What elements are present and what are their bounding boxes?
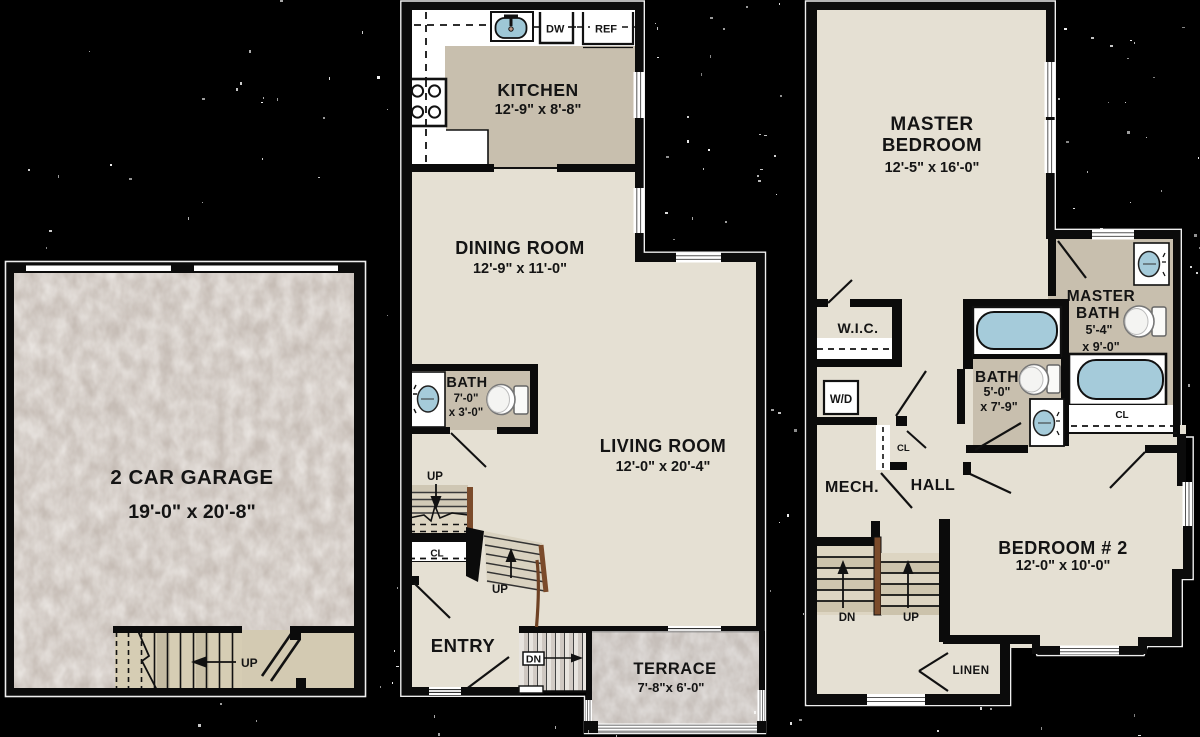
svg-text:BATH: BATH [975,369,1019,386]
svg-text:BATH: BATH [446,375,487,391]
svg-text:7'-8"x 6'-0": 7'-8"x 6'-0" [638,680,705,695]
svg-text:12'-9" x 8'-8": 12'-9" x 8'-8" [495,102,582,118]
svg-text:12'-0" x 10'-0": 12'-0" x 10'-0" [1016,558,1111,574]
svg-text:UP: UP [241,656,258,670]
svg-text:12'-5" x 16'-0": 12'-5" x 16'-0" [885,160,980,176]
svg-text:DINING ROOM: DINING ROOM [455,238,585,258]
svg-text:REF: REF [595,24,617,36]
svg-text:x 7'-9": x 7'-9" [980,400,1017,414]
svg-text:x 3'-0": x 3'-0" [449,407,483,419]
svg-text:UP: UP [492,584,508,596]
svg-text:DN: DN [526,654,541,666]
svg-text:DW: DW [546,24,565,36]
svg-text:LINEN: LINEN [953,665,990,677]
svg-text:CL: CL [1115,410,1128,421]
svg-text:W/D: W/D [830,394,852,406]
svg-text:5'-4": 5'-4" [1086,323,1113,337]
svg-text:MASTER: MASTER [890,114,973,135]
svg-text:UP: UP [427,471,443,483]
svg-text:BEDROOM: BEDROOM [882,134,982,155]
svg-text:BEDROOM # 2: BEDROOM # 2 [998,538,1128,558]
svg-text:MECH.: MECH. [825,479,879,496]
svg-text:2 CAR GARAGE: 2 CAR GARAGE [110,466,273,489]
svg-text:x 9'-0": x 9'-0" [1082,340,1119,354]
svg-text:DN: DN [839,612,856,624]
svg-text:ENTRY: ENTRY [431,635,496,656]
svg-text:LIVING ROOM: LIVING ROOM [600,436,727,456]
svg-text:TERRACE: TERRACE [633,660,716,678]
svg-text:KITCHEN: KITCHEN [497,80,578,100]
svg-text:7'-0": 7'-0" [454,393,479,405]
svg-text:MASTER: MASTER [1067,288,1135,305]
svg-text:12'-9" x 11'-0": 12'-9" x 11'-0" [473,261,567,277]
svg-text:CL: CL [897,443,910,454]
svg-text:5'-0": 5'-0" [984,385,1011,399]
svg-text:UP: UP [903,612,919,624]
svg-text:12'-0" x 20'-4": 12'-0" x 20'-4" [616,459,711,475]
svg-text:W.I.C.: W.I.C. [837,320,878,336]
svg-text:HALL: HALL [911,477,956,494]
svg-text:BATH: BATH [1076,305,1120,322]
svg-text:19'-0" x 20'-8": 19'-0" x 20'-8" [128,501,256,523]
